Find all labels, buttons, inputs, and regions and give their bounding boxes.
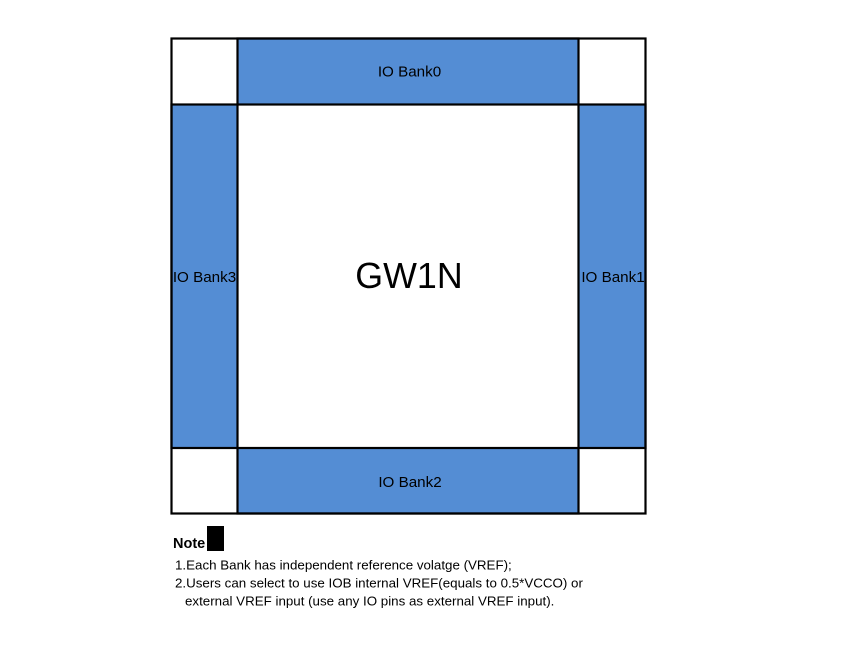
svg-text:IO Bank3: IO Bank3 [173,269,236,286]
svg-text:IO Bank1: IO Bank1 [581,269,644,286]
svg-text:GW1N: GW1N [355,256,462,296]
svg-text:IO Bank2: IO Bank2 [378,474,441,491]
svg-text:IO Bank0: IO Bank0 [378,64,441,81]
svg-text:Note: Note [173,536,205,552]
svg-text:2.Users can select to use IOB: 2.Users can select to use IOB internal V… [175,575,583,590]
svg-text:1.Each Bank has independent re: 1.Each Bank has independent reference vo… [175,557,512,572]
svg-text:external VREF input (use any I: external VREF input (use any IO pins as … [185,593,554,608]
